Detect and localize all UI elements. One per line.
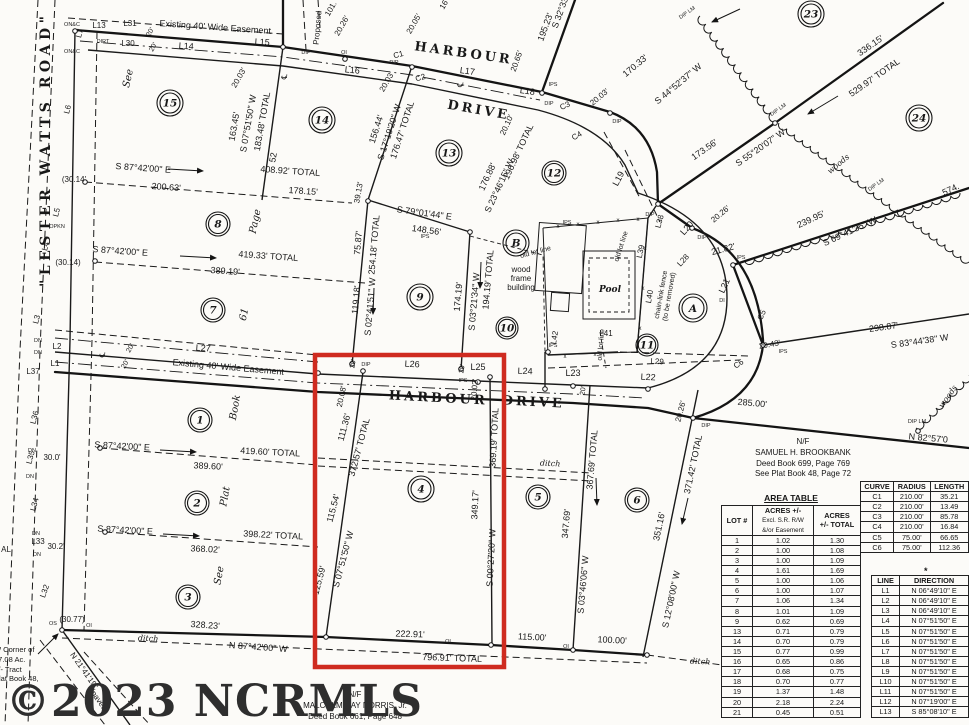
svg-text:163.45': 163.45' <box>227 111 242 142</box>
table-cell: 3 <box>722 556 753 566</box>
table-row: C675.00'112.36 <box>861 542 969 552</box>
svg-text:ON&C: ON&C <box>64 22 80 28</box>
svg-text:DIP LM: DIP LM <box>867 177 886 193</box>
svg-text:ON&C: ON&C <box>64 49 80 55</box>
svg-text:old lot line: old lot line <box>597 329 607 361</box>
svg-text:389.19': 389.19' <box>210 265 240 277</box>
svg-text:L3: L3 <box>31 313 42 324</box>
table-row: 202.182.24 <box>722 697 861 707</box>
svg-text:S 03°46'06" W: S 03°46'06" W <box>576 555 591 614</box>
svg-text:20.05': 20.05' <box>405 12 424 36</box>
svg-text:DIP: DIP <box>645 212 655 218</box>
road-label-harbour-upper: HARBOUR <box>413 39 513 68</box>
table-cell: 0.77 <box>753 647 814 657</box>
table-row: L7N 07°51'50" E <box>872 646 969 656</box>
svg-text:A: A <box>688 303 697 315</box>
table-row: 81.011.09 <box>722 606 861 616</box>
table-cell: 1.48 <box>814 687 861 697</box>
woods-line <box>698 16 777 122</box>
table-cell: 0.68 <box>753 667 814 677</box>
table-cell: C4 <box>861 522 894 532</box>
svg-text:1: 1 <box>196 415 203 427</box>
svg-text:170.33': 170.33' <box>621 52 650 79</box>
table-cell: L10 <box>872 677 900 687</box>
svg-text:Pool: Pool <box>598 285 622 295</box>
line-table: LINE DIRECTION L1N 06°49'10" EL2N 06°49'… <box>871 575 969 718</box>
table-cell: 16 <box>722 657 753 667</box>
table-cell: N 07°51'50" E <box>900 646 969 656</box>
svg-text:349.17': 349.17' <box>469 490 481 520</box>
svg-text:371.42' TOTAL: 371.42' TOTAL <box>682 434 704 495</box>
table-cell: L2 <box>872 596 900 606</box>
svg-text:S 79°01'44" E: S 79°01'44" E <box>396 204 452 222</box>
table-cell: N 06°49'10" E <box>900 586 969 596</box>
lot-circle-15: 15 <box>157 90 183 116</box>
svg-text:L1: L1 <box>51 359 60 368</box>
line-col: LINE <box>872 576 900 586</box>
table-cell: 0.71 <box>753 626 814 636</box>
table-cell: 0.99 <box>814 647 861 657</box>
svg-text:254.18' TOTAL: 254.18' TOTAL <box>366 215 381 275</box>
table-row: L6N 07°51'50" E <box>872 636 969 646</box>
table-row: L8N 07°51'50" E <box>872 656 969 666</box>
dim-arrow <box>163 534 199 536</box>
svg-text:5: 5 <box>534 492 541 504</box>
svg-text:DIP LM: DIP LM <box>678 5 697 21</box>
svg-text:L36: L36 <box>29 409 41 425</box>
table-cell: C6 <box>861 542 894 552</box>
table-cell: 85.78 <box>930 512 969 522</box>
table-cell: 1.34 <box>814 596 861 606</box>
table-cell: 18 <box>722 677 753 687</box>
area-col-lot: LOT # <box>722 506 753 536</box>
svg-text:L21: L21 <box>717 277 732 295</box>
table-cell: 1.00 <box>753 576 814 586</box>
svg-text:10: 10 <box>500 323 515 335</box>
table-cell: 210.00' <box>894 522 930 532</box>
table-row: L12N 07°19'00" E <box>872 697 969 707</box>
svg-text:6: 6 <box>633 495 641 507</box>
table-cell: 1.06 <box>814 576 861 586</box>
svg-text:8: 8 <box>214 219 222 231</box>
dim-arrow <box>596 478 597 505</box>
svg-text:L19: L19 <box>610 170 626 188</box>
table-cell: 1.08 <box>814 545 861 555</box>
table-cell: 1.00 <box>753 556 814 566</box>
table-row: L9N 07°51'50" E <box>872 666 969 676</box>
table-cell: 0.70 <box>753 677 814 687</box>
svg-text:℄: ℄ <box>98 351 108 359</box>
table-row: C3210.00'85.78 <box>861 512 969 522</box>
svg-text:S 87°42'00" E: S 87°42'00" E <box>92 244 148 258</box>
table-row: L13S 85°08'10" E <box>872 707 969 717</box>
svg-text:Proposed: Proposed <box>312 10 324 45</box>
table-cell: 4 <box>722 566 753 576</box>
dim-arrow <box>168 169 203 171</box>
table-row: 71.061.34 <box>722 596 861 606</box>
lot-circle-14: 14 <box>309 107 335 133</box>
svg-text:OI: OI <box>86 623 92 629</box>
svg-text:178.15': 178.15' <box>288 185 318 197</box>
svg-text:14: 14 <box>315 115 330 127</box>
svg-text:L34: L34 <box>29 496 41 512</box>
svg-text:(30.14): (30.14) <box>55 258 81 267</box>
table-row: L5N 07°51'50" E <box>872 626 969 636</box>
lot-circle-23: 23 <box>798 1 824 27</box>
lot-circle-4: 4 <box>408 476 434 502</box>
svg-text:4: 4 <box>417 484 424 496</box>
svg-text:See: See <box>121 68 136 89</box>
svg-text:L24: L24 <box>517 366 532 377</box>
table-cell: 14 <box>722 636 753 646</box>
svg-text:20': 20' <box>458 364 466 374</box>
dashed-lines <box>5 0 760 725</box>
lot-circle-5: 5 <box>526 485 550 509</box>
svg-text:Page: Page <box>247 208 263 235</box>
table-row: L10N 07°51'50" E <box>872 677 969 687</box>
table-cell: 1.09 <box>814 606 861 616</box>
area-table: AREA TABLE LOT # ACRES +/- Excl. S.R. R/… <box>721 493 861 718</box>
table-cell: 1.06 <box>753 596 814 606</box>
svg-text:194.19' TOTAL: 194.19' TOTAL <box>480 250 495 310</box>
svg-text:woods: woods <box>937 383 959 409</box>
table-cell: L9 <box>872 666 900 676</box>
table-cell: 1.07 <box>814 586 861 596</box>
svg-text:111.36': 111.36' <box>336 412 353 442</box>
svg-text:20.08': 20.08' <box>335 385 348 408</box>
brookbank-note: N/F SAMUEL H. BROOKBANK Deed Book 699, P… <box>728 437 878 480</box>
svg-text:x: x <box>637 217 640 223</box>
svg-text:DN: DN <box>32 531 40 537</box>
svg-text:285.00': 285.00' <box>737 397 767 410</box>
table-row: 140.700.79 <box>722 636 861 646</box>
svg-text:408.92' TOTAL: 408.92' TOTAL <box>260 164 320 178</box>
svg-text:30.0': 30.0' <box>43 453 61 462</box>
table-cell: 1.37 <box>753 687 814 697</box>
svg-text:L5: L5 <box>51 206 62 217</box>
lot-circle-9: 9 <box>407 284 433 310</box>
dim-arrow <box>682 498 688 524</box>
svg-text:15: 15 <box>163 98 178 110</box>
direction-col: DIRECTION <box>900 576 969 586</box>
table-cell: 0.45 <box>753 707 814 717</box>
table-cell: 0.86 <box>814 657 861 667</box>
table-cell: 210.00' <box>894 502 930 512</box>
svg-text:x: x <box>597 220 600 226</box>
table-cell: 1.61 <box>753 566 814 576</box>
svg-text:S 32°33': S 32°33' <box>550 0 571 30</box>
table-row: L11N 07°51'50" E <box>872 687 969 697</box>
table-cell: N 07°51'50" E <box>900 677 969 687</box>
svg-text:61: 61 <box>238 307 251 322</box>
ncrmls-watermark: ©2023 NCRMLS <box>6 676 423 725</box>
svg-text:C4: C4 <box>570 129 584 142</box>
svg-text:L16: L16 <box>344 64 360 76</box>
table-row: L3N 06°49'10" E <box>872 606 969 616</box>
svg-text:OS: OS <box>49 621 57 627</box>
svg-text:DN: DN <box>34 338 42 344</box>
svg-text:L13: L13 <box>92 21 106 30</box>
svg-text:x: x <box>642 286 645 292</box>
table-cell: 1.09 <box>814 556 861 566</box>
svg-text:200.63': 200.63' <box>151 181 181 193</box>
table-cell: N 07°51'50" E <box>900 687 969 697</box>
svg-text:119.18': 119.18' <box>350 285 362 315</box>
lot-circle-7: 7 <box>201 298 225 322</box>
svg-text:369.19' TOTAL: 369.19' TOTAL <box>487 408 500 468</box>
table-cell: 1.00 <box>753 545 814 555</box>
svg-text:39.13': 39.13' <box>352 181 365 204</box>
table-cell: L3 <box>872 606 900 616</box>
svg-text:174.19': 174.19' <box>452 281 465 311</box>
table-row: L1N 06°49'10" E <box>872 586 969 596</box>
svg-text:100.00': 100.00' <box>597 634 627 646</box>
table-row: L2N 06°49'10" E <box>872 596 969 606</box>
dim-arrow <box>160 450 196 452</box>
table-cell: 0.51 <box>814 707 861 717</box>
table-row: 41.611.69 <box>722 566 861 576</box>
svg-text:ditch: ditch <box>540 458 561 468</box>
svg-text:DIP: DIP <box>389 60 399 66</box>
table-cell: L6 <box>872 636 900 646</box>
svg-text:OI: OI <box>341 50 347 56</box>
table-cell: 75.00' <box>894 532 930 542</box>
svg-text:12: 12 <box>547 168 562 180</box>
lot-circle-10: 10 <box>496 317 518 339</box>
table-cell: 2.18 <box>753 697 814 707</box>
table-row: 130.710.79 <box>722 626 861 636</box>
table-cell: 1.30 <box>814 535 861 545</box>
svg-text:20.02': 20.02' <box>469 378 480 401</box>
svg-text:DN: DN <box>34 350 42 356</box>
svg-text:115.54': 115.54' <box>325 493 342 523</box>
svg-text:L40: L40 <box>644 289 655 304</box>
table-cell: 15 <box>722 647 753 657</box>
svg-text:IPS: IPS <box>563 220 572 226</box>
svg-text:328.23': 328.23' <box>190 619 220 631</box>
lot-circle-12: 12 <box>542 161 566 185</box>
svg-text:9: 9 <box>416 292 424 304</box>
svg-text:frame: frame <box>511 274 532 283</box>
lot-circle-6: 6 <box>625 488 649 512</box>
svg-text:398.22' TOTAL: 398.22' TOTAL <box>243 528 303 541</box>
table-row: 21.001.08 <box>722 545 861 555</box>
dim-arrow <box>808 96 838 114</box>
svg-text:529.97' TOTAL: 529.97' TOTAL <box>847 56 902 98</box>
table-row: 191.371.48 <box>722 687 861 697</box>
lot-circle-3: 3 <box>176 585 200 609</box>
svg-text:L32: L32 <box>38 583 51 599</box>
svg-text:x: x <box>617 218 620 224</box>
table-cell: 1 <box>722 535 753 545</box>
table-cell: L4 <box>872 616 900 626</box>
svg-text:L27: L27 <box>195 342 211 353</box>
table-cell: 2.24 <box>814 697 861 707</box>
svg-text:L28: L28 <box>675 252 691 268</box>
svg-text:AL: AL <box>1 545 11 554</box>
table-cell: L13 <box>872 707 900 717</box>
table-cell: C1 <box>861 492 894 502</box>
svg-text:Existing 40' Wide Easement: Existing 40' Wide Easement <box>172 357 285 377</box>
svg-text:L31: L31 <box>123 19 137 28</box>
svg-text:DIP: DIP <box>361 362 371 368</box>
svg-text:IPS: IPS <box>549 343 558 349</box>
svg-text:IPS: IPS <box>549 82 558 88</box>
table-row: L4N 07°51'50" E <box>872 616 969 626</box>
svg-text:L2: L2 <box>53 342 62 351</box>
radius-col: RADIUS <box>894 482 930 492</box>
svg-text:(30.14': (30.14' <box>62 175 87 184</box>
table-cell: L7 <box>872 646 900 656</box>
svg-text:See: See <box>212 565 226 585</box>
svg-text:52: 52 <box>267 152 279 164</box>
area-col-excl: ACRES +/- Excl. S.R. R/W &/or Easement <box>753 506 814 536</box>
table-row: 160.650.86 <box>722 657 861 667</box>
dim-arrow <box>712 9 740 22</box>
svg-text:L33: L33 <box>31 537 45 546</box>
table-row: 150.770.99 <box>722 647 861 657</box>
length-col: LENGTH <box>930 482 969 492</box>
lot-circle-A: A <box>679 294 707 322</box>
svg-text:B: B <box>511 238 521 250</box>
table-cell: L12 <box>872 697 900 707</box>
dim-arrow <box>180 256 216 258</box>
svg-text:298.87': 298.87' <box>868 320 899 334</box>
table-cell: N 06°49'10" E <box>900 596 969 606</box>
table-cell: 8 <box>722 606 753 616</box>
svg-text:L37: L37 <box>26 367 40 376</box>
table-row: 61.001.07 <box>722 586 861 596</box>
table-cell: L8 <box>872 656 900 666</box>
svg-text:L22: L22 <box>640 372 656 383</box>
table-cell: 0.77 <box>814 677 861 687</box>
svg-text:x: x <box>564 354 567 360</box>
svg-text:16: 16 <box>438 0 451 11</box>
table-cell: 75.00' <box>894 542 930 552</box>
svg-text:389.60': 389.60' <box>193 460 223 472</box>
svg-text:ditch: ditch <box>138 633 159 643</box>
table-row: C575.00'66.65 <box>861 532 969 542</box>
svg-text:building: building <box>507 283 535 292</box>
svg-text:L17: L17 <box>459 65 475 77</box>
svg-text:Existing 40' Wide Easement: Existing 40' Wide Easement <box>159 18 272 36</box>
table-cell: 5 <box>722 576 753 586</box>
svg-text:20.03': 20.03' <box>230 66 249 90</box>
table-cell: 1.00 <box>753 586 814 596</box>
lot-circle-24: 24 <box>906 105 932 131</box>
table-cell: N 06°49'10" E <box>900 606 969 616</box>
svg-text:x: x <box>639 326 642 332</box>
svg-text:DIP LM: DIP LM <box>908 419 927 425</box>
svg-text:S 02°41'51" W: S 02°41'51" W <box>363 277 378 336</box>
table-cell: 0.69 <box>814 616 861 626</box>
svg-text:24: 24 <box>911 113 927 125</box>
svg-text:C5: C5 <box>755 308 768 322</box>
svg-text:S 03°21'34" W: S 03°21'34" W <box>467 272 482 331</box>
svg-text:3: 3 <box>184 592 191 604</box>
svg-text:DIP: DIP <box>701 423 711 429</box>
svg-text:IPS: IPS <box>421 234 430 240</box>
svg-text:S 07°51'50" W: S 07°51'50" W <box>331 529 356 588</box>
svg-text:IPS: IPS <box>459 378 468 384</box>
table-row: 210.450.51 <box>722 707 861 717</box>
svg-text:20': 20' <box>148 42 159 53</box>
table-row: 170.680.75 <box>722 667 861 677</box>
plat-map-page: xx xx xx xx xx "LESTER WATTS RO <box>0 0 969 725</box>
svg-text:173.56': 173.56' <box>689 137 719 162</box>
svg-text:L25: L25 <box>470 362 485 372</box>
table-row: C4210.00'16.84 <box>861 522 969 532</box>
table-cell: C5 <box>861 532 894 542</box>
svg-text:C2: C2 <box>414 72 427 83</box>
svg-text:DN: DN <box>33 552 41 558</box>
svg-text:419.60' TOTAL: 419.60' TOTAL <box>240 445 300 458</box>
table-cell: N 07°19'00" E <box>900 697 969 707</box>
svg-text:DIP: DIP <box>301 50 311 56</box>
table-row: C1210.00'35.21 <box>861 492 969 502</box>
svg-text:DIP: DIP <box>544 101 554 107</box>
svg-text:DN: DN <box>28 448 36 454</box>
table-cell: 112.36 <box>930 542 969 552</box>
svg-text:115.00': 115.00' <box>518 631 547 642</box>
table-cell: 66.65 <box>930 532 969 542</box>
svg-text:OI: OI <box>445 639 451 645</box>
table-cell: 1.02 <box>753 535 814 545</box>
svg-text:ditch: ditch <box>690 656 711 666</box>
table-row: 90.620.69 <box>722 616 861 626</box>
svg-text:OI: OI <box>563 644 569 650</box>
svg-text:(30.77): (30.77) <box>59 615 85 624</box>
svg-text:OPKN: OPKN <box>49 224 65 230</box>
table-cell: 0.79 <box>814 626 861 636</box>
svg-text:7: 7 <box>209 305 217 317</box>
svg-text:L23: L23 <box>565 368 580 378</box>
table-row: C2210.00'13.49 <box>861 502 969 512</box>
svg-text:DI: DI <box>719 298 725 304</box>
svg-text:DN: DN <box>26 474 34 480</box>
svg-text:20': 20' <box>349 359 357 369</box>
svg-text:L29: L29 <box>650 357 664 367</box>
svg-text:wood: wood <box>510 265 530 274</box>
svg-text:30.2': 30.2' <box>47 542 65 551</box>
svg-text:Book: Book <box>228 394 243 422</box>
svg-text:N 87°42'00" W: N 87°42'00" W <box>229 640 289 654</box>
road-label-drive-lower: DRIVE <box>501 393 565 411</box>
table-cell: 35.21 <box>930 492 969 502</box>
svg-text:L30: L30 <box>121 39 135 48</box>
svg-text:796.91' TOTAL: 796.91' TOTAL <box>422 652 482 664</box>
table-cell: S 85°08'10" E <box>900 707 969 717</box>
svg-text:DIP: DIP <box>697 235 707 241</box>
table-cell: N 07°51'50" E <box>900 636 969 646</box>
svg-text:239.95': 239.95' <box>795 208 826 230</box>
svg-text:Plat: Plat <box>218 485 233 508</box>
table-cell: 210.00' <box>894 512 930 522</box>
svg-text:11: 11 <box>640 340 655 352</box>
svg-text:419.33' TOTAL: 419.33' TOTAL <box>238 249 298 263</box>
table-cell: 1.01 <box>753 606 814 616</box>
table-cell: L1 <box>872 586 900 596</box>
table-cell: 0.62 <box>753 616 814 626</box>
table-cell: L5 <box>872 626 900 636</box>
table-row: 180.700.77 <box>722 677 861 687</box>
svg-text:222.91': 222.91' <box>395 628 425 639</box>
svg-text:C1: C1 <box>392 49 405 60</box>
table-cell: C2 <box>861 502 894 512</box>
curve-table: CURVE RADIUS LENGTH C1210.00'35.21C2210.… <box>860 481 969 553</box>
svg-text:20.26': 20.26' <box>333 14 352 38</box>
svg-text:20.26': 20.26' <box>673 399 687 423</box>
